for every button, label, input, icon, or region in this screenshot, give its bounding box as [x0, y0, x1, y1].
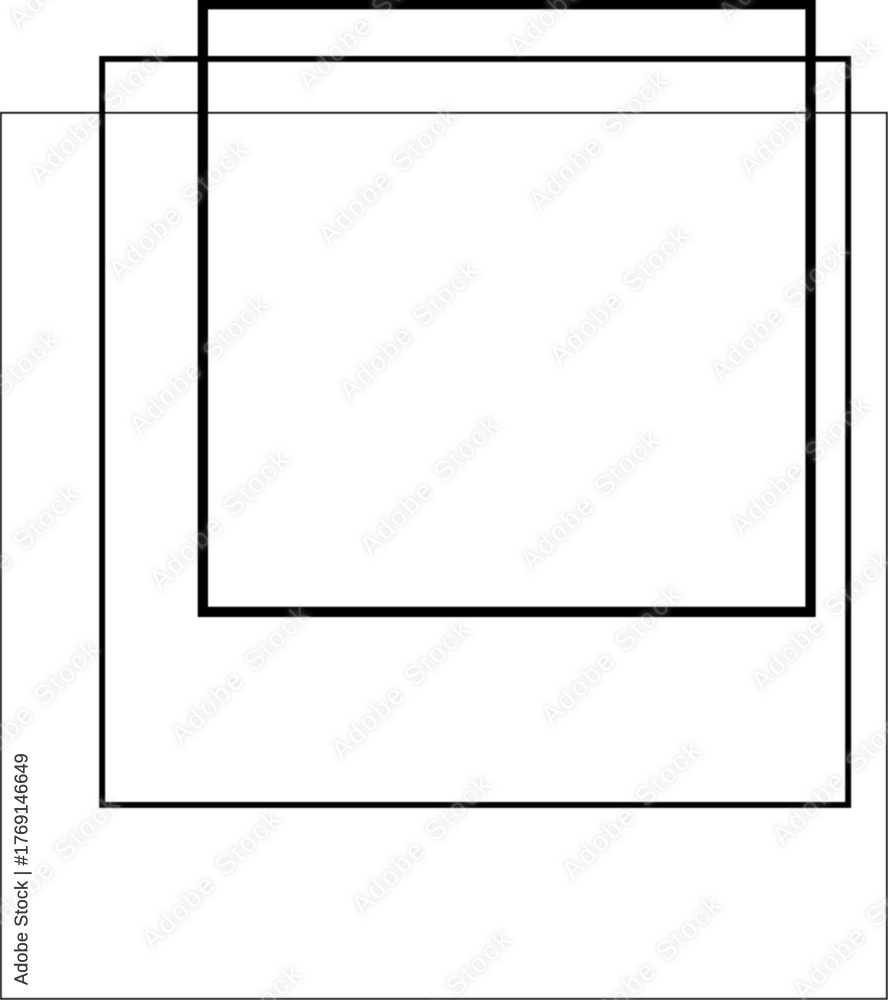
svg-text:Adobe Stock | #1769146649: Adobe Stock | #1769146649	[12, 753, 32, 985]
